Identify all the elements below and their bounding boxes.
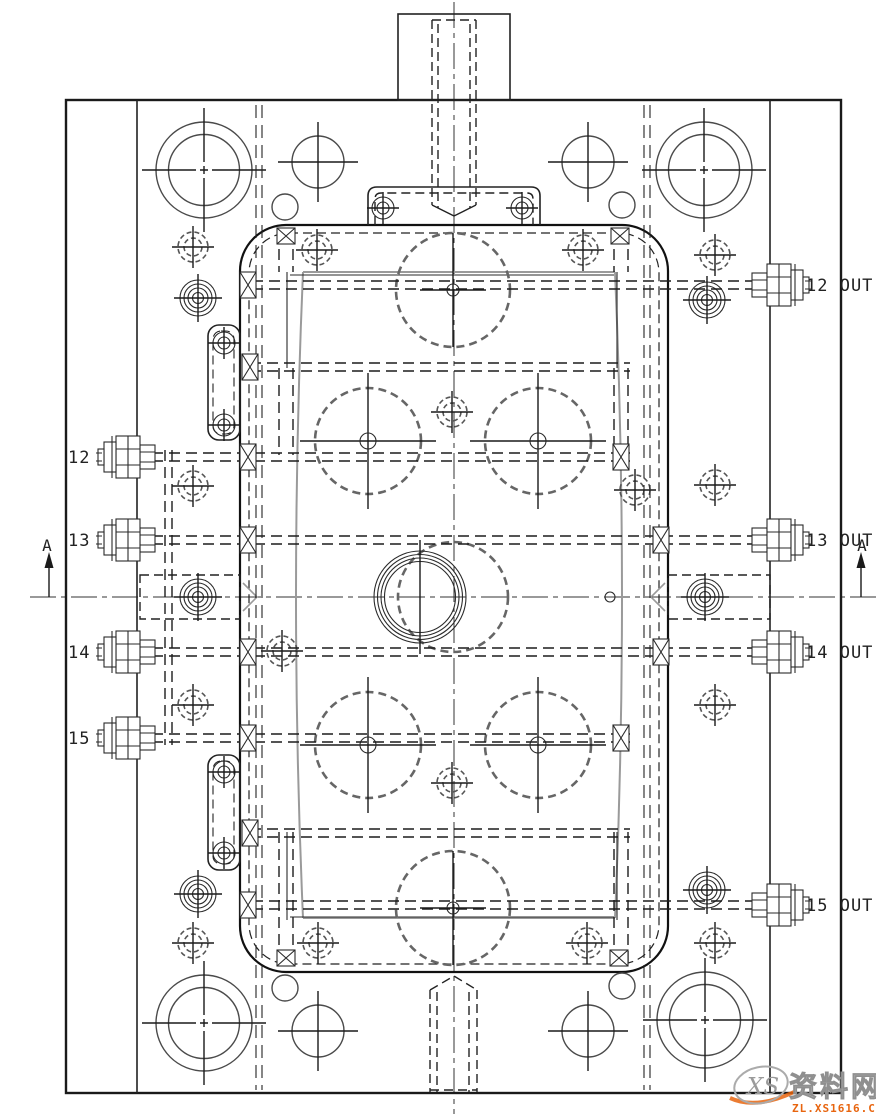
port-labels: 12 IN 13 IN 14 IN 15 IN 12 OUT 13 OUT 14…: [68, 276, 873, 916]
port-label-14-out: 14 OUT: [806, 643, 873, 663]
section-letter-right: A: [857, 536, 867, 555]
section-marker-left: A: [42, 536, 53, 597]
port-label-12-out: 12 OUT: [806, 276, 873, 296]
watermark-site-name: 资料网: [789, 1070, 876, 1103]
section-letter-left: A: [42, 536, 52, 555]
cavity-circles: [300, 233, 615, 965]
mold-plate-drawing: 12 IN 13 IN 14 IN 15 IN 12 OUT 13 OUT 14…: [0, 0, 876, 1114]
watermark: XS 资料网 ZL.XS1616.COM: [730, 1062, 876, 1114]
watermark-url: ZL.XS1616.COM: [792, 1102, 876, 1114]
watermark-logo-text: XS: [745, 1074, 779, 1100]
section-marker-right: A: [857, 536, 868, 597]
cad-drawing-page: 12 IN 13 IN 14 IN 15 IN 12 OUT 13 OUT 14…: [0, 0, 876, 1114]
port-label-15-out: 15 OUT: [806, 896, 873, 916]
gate-block-bolts: [367, 192, 538, 224]
